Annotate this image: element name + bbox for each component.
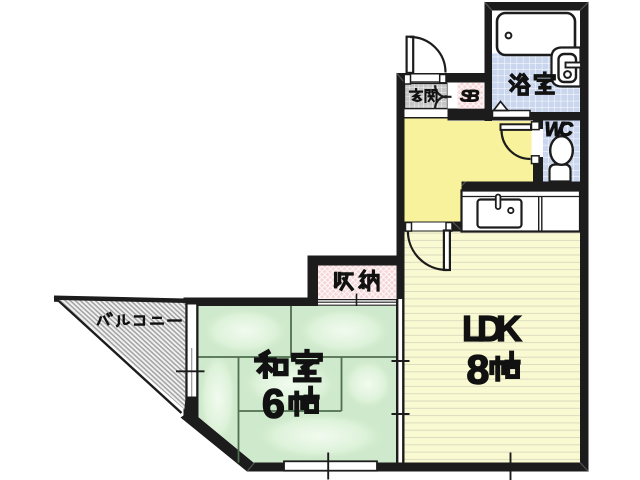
svg-text:LDK: LDK [462,308,522,349]
svg-text:6: 6 [262,381,285,427]
svg-text:SB: SB [460,87,480,106]
svg-text:WC: WC [545,119,574,141]
svg-text:8: 8 [467,347,490,393]
